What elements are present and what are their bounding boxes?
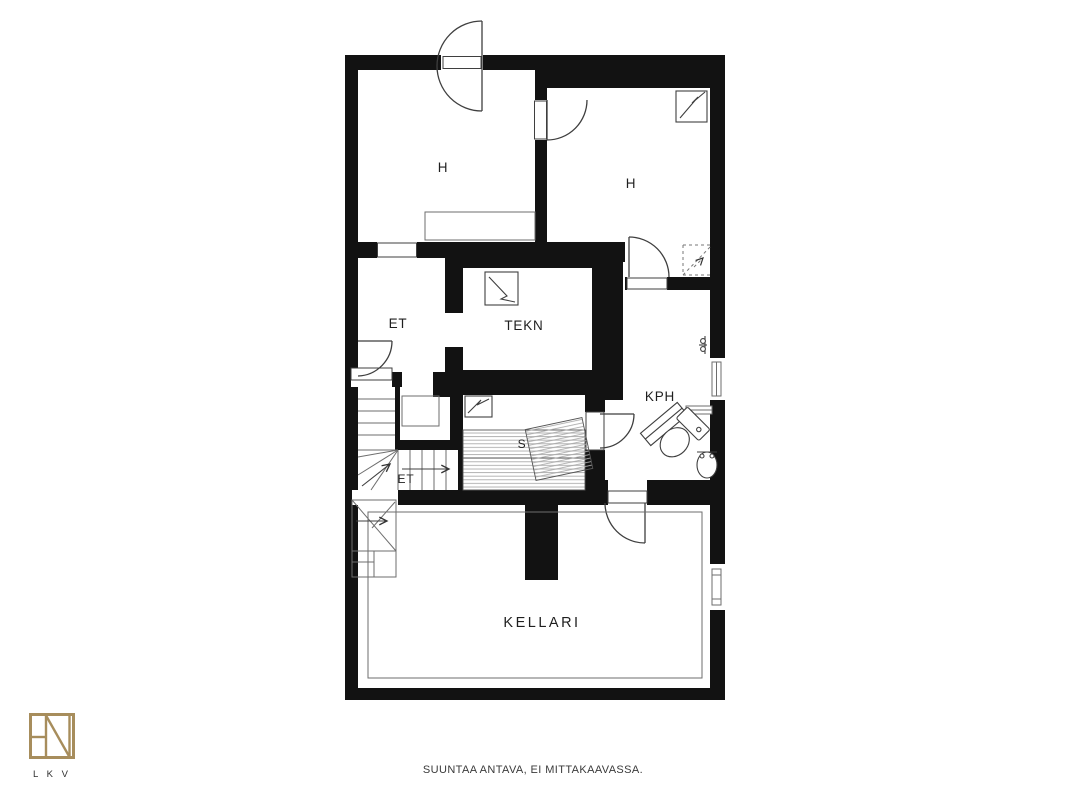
company-logo: [31, 715, 74, 758]
electric-panel-icon-room-h: [676, 91, 707, 122]
door-sauna-bathroom: [600, 414, 634, 448]
window-bathroom: [710, 358, 725, 400]
disclaimer-text: SUUNTAA ANTAVA, EI MITTAKAAVASSA.: [423, 764, 643, 776]
room-label-entry-hall: ET: [389, 316, 408, 331]
sauna-benches: [463, 418, 593, 490]
room-label-technical: TEKN: [504, 318, 543, 333]
floor-plan: H H ET TEKN KPH S ET KELLARI L K V SUUNT…: [0, 0, 1066, 800]
closet-room-h-left: [425, 212, 535, 240]
room-label-stair-hall: ET: [398, 472, 415, 486]
window-cellar: [710, 564, 725, 610]
slope-arrow-icon: [683, 245, 712, 275]
door-cellar: [605, 503, 645, 543]
logo-caption: L K V: [33, 769, 71, 780]
door-between-h-rooms: [547, 100, 587, 140]
room-label-bathroom: KPH: [645, 389, 675, 404]
room-label-h-right: H: [626, 176, 637, 191]
page: H H ET TEKN KPH S ET KELLARI L K V SUUNT…: [0, 0, 1066, 800]
room-label-cellar: KELLARI: [503, 615, 580, 631]
room-label-h-left: H: [438, 160, 449, 175]
washbasin-icon: [697, 452, 717, 478]
electric-panel-icon-tekn: [485, 272, 518, 305]
shower-valve-icon: [699, 336, 707, 354]
room-label-sauna: S: [518, 437, 527, 451]
closet-under-stairs: [402, 396, 439, 426]
sauna-heater-icon: [465, 396, 492, 417]
